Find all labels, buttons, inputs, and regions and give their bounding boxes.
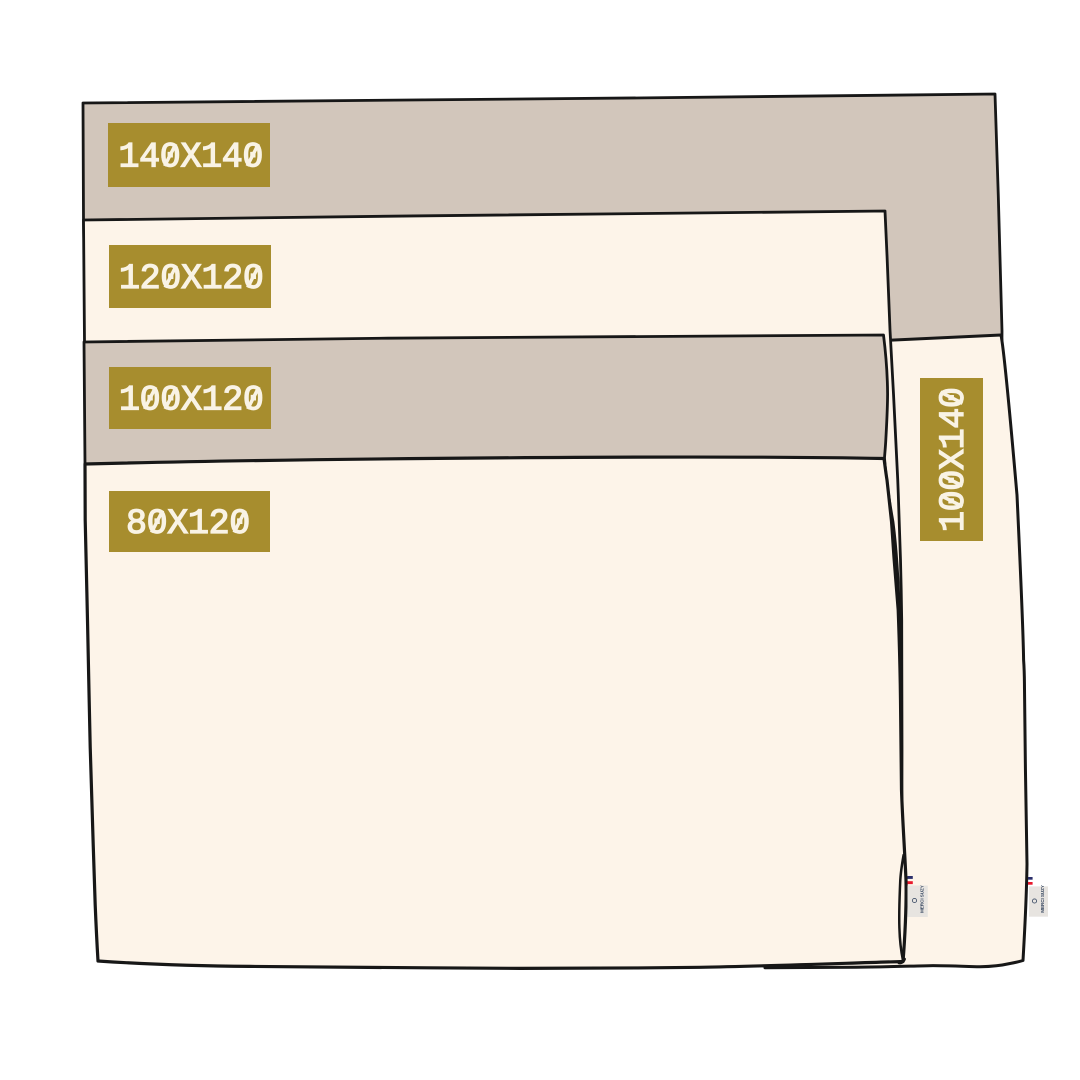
svg-text:MERCI SUZY: MERCI SUZY (1040, 884, 1045, 913)
svg-text:120X120: 120X120 (119, 259, 264, 299)
svg-text:100X140: 100X140 (934, 387, 974, 532)
svg-text:MERCI SUZY: MERCI SUZY (919, 884, 924, 913)
svg-text:80X120: 80X120 (126, 504, 250, 544)
svg-text:140X140: 140X140 (119, 138, 264, 178)
svg-text:100X120: 100X120 (119, 381, 264, 421)
